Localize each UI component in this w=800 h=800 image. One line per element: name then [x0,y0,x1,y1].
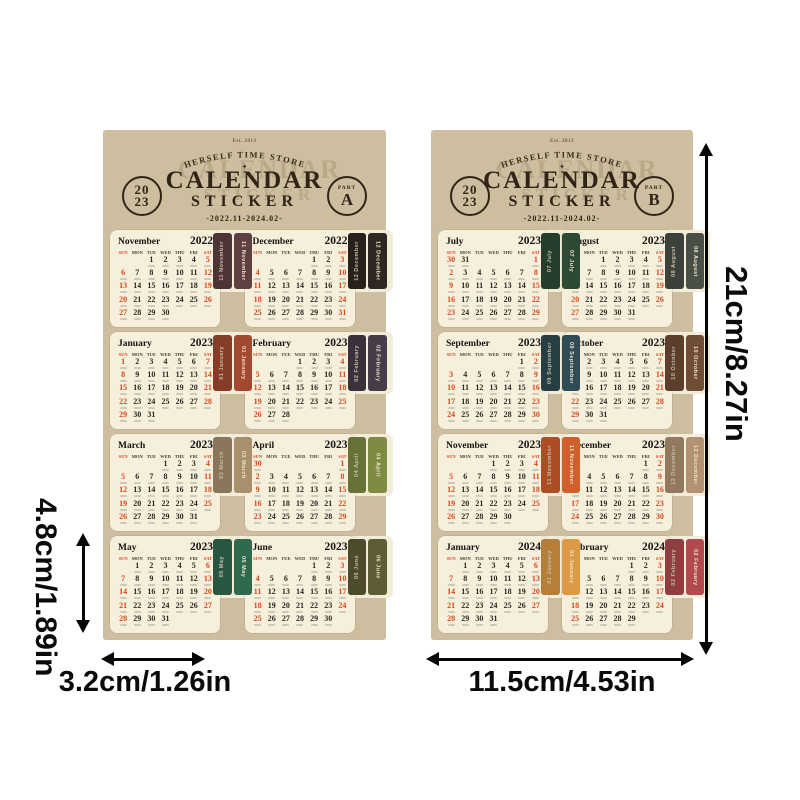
lunar-subtext [325,318,332,320]
lunar-subtext [311,584,318,586]
calendar-cell: 09 September09 SeptemberSeptember2023SUN… [438,332,562,434]
day-number: 3 [458,269,472,277]
day-cell: 18 [251,296,265,309]
lunar-subtext [628,571,635,573]
month-tab: 08 August08 August [665,233,704,289]
lunar-subtext [311,597,318,599]
day-cell: 20 [596,602,610,615]
day-number: 4 [251,269,265,277]
day-cell: 31 [187,513,201,526]
weekday-label: MON [582,453,596,460]
day-number: 15 [144,282,158,290]
day-number: 22 [335,500,349,508]
day-number: 19 [625,384,639,392]
sheet-a-header: CALENDAR STICKER Est. 2013 HERSELF TIME … [103,130,386,230]
day-cell: 26 [582,615,596,628]
month-tab-label: 01 January [568,550,574,584]
day-number: 17 [321,384,335,392]
day-grid: SUNMONTUEWEDTHUFRISAT1234567891011121314… [438,554,548,628]
lunar-subtext [600,278,607,280]
lunar-subtext [296,482,303,484]
day-number: 20 [130,500,144,508]
lunar-subtext [614,407,621,409]
lunar-subtext [176,495,183,497]
day-cell: 27 [639,398,653,411]
day-number: 25 [251,615,265,623]
weekday-label: WED [293,453,307,460]
lunar-subtext [120,305,127,307]
lunar-subtext [296,393,303,395]
month-name: September [446,339,490,349]
day-number: 26 [444,513,458,521]
lunar-subtext [490,318,497,320]
lunar-subtext [628,624,635,626]
day-cell: 19 [625,384,639,397]
day-number: 14 [444,588,458,596]
day-number: 21 [625,500,639,508]
lunar-subtext [339,380,346,382]
lunar-subtext [148,495,155,497]
day-cell: 17 [568,500,582,513]
month-tab-out: 03 March [234,437,253,493]
month-tab-label: 09 September [568,342,574,384]
lunar-subtext [642,571,649,573]
lunar-subtext [162,393,169,395]
day-cell: 20 [501,296,515,309]
month-tab-out: 01 January [234,335,253,391]
lunar-subtext [600,482,607,484]
month-tab: 02 February02 February [665,539,704,595]
day-number: 22 [568,398,582,406]
day-number: 12 [486,282,500,290]
lunar-subtext [462,611,469,613]
lunar-subtext [462,393,469,395]
day-cell: 31 [625,309,639,322]
lunar-subtext [190,469,197,471]
day-number: 25 [251,309,265,317]
lunar-subtext [504,318,511,320]
day-cell: 19 [486,296,500,309]
weekday-label: TUE [279,453,293,460]
day-cell: 13 [116,282,130,295]
day-number: 30 [529,411,543,419]
lunar-subtext [339,509,346,511]
day-number: 15 [307,282,321,290]
lunar-subtext [572,522,579,524]
lunar-subtext [282,291,289,293]
lunar-subtext [134,407,141,409]
day-cell: 23 [444,309,458,322]
lunar-subtext [656,407,663,409]
lunar-subtext [504,611,511,613]
lunar-subtext [600,265,607,267]
day-number: 31 [458,256,472,264]
day-number: 10 [321,371,335,379]
day-number: 13 [486,384,500,392]
month-tab: 12 December12 December [348,233,387,289]
day-number: 17 [187,486,201,494]
day-number: 20 [486,398,500,406]
lunar-subtext [504,597,511,599]
lunar-subtext [204,584,211,586]
month-year: 2024 [518,541,541,553]
day-cell: 25 [279,513,293,526]
lunar-subtext [642,495,649,497]
month-tab-label: 11 November [240,241,246,281]
sticker-sheet-part-b: CALENDAR STICKER Est. 2013 HERSELF TIME … [431,130,693,640]
weekday-label: SUN [116,453,130,460]
lunar-subtext [120,367,127,369]
lunar-subtext [339,611,346,613]
day-cell: 21 [293,296,307,309]
day-number: 14 [501,384,515,392]
day-number: 13 [639,371,653,379]
day-number: 10 [515,473,529,481]
sheet-width-dimension-label: 11.5cm/4.53in [452,666,672,699]
lunar-subtext [614,495,621,497]
day-number: 7 [144,473,158,481]
lunar-subtext [190,407,197,409]
month-tab-label: 04 April [374,453,380,477]
lunar-subtext [628,509,635,511]
day-number: 10 [144,371,158,379]
day-cell: 27 [596,615,610,628]
day-cell: 19 [187,588,201,601]
day-number: 15 [486,486,500,494]
day-cell: 19 [582,602,596,615]
day-cell: 17 [187,486,201,499]
day-number: 28 [279,411,293,419]
day-grid: SUNMONTUEWEDTHUFRISAT1234567891011121314… [110,452,220,526]
lunar-subtext [134,482,141,484]
day-cell: 29 [639,513,653,526]
day-cell: 22 [130,602,144,615]
day-cell: 22 [116,398,130,411]
day-cell: 30 [158,309,172,322]
month-tab-out: 10 October [686,335,705,391]
day-cell: 23 [610,296,624,309]
day-number: 22 [307,296,321,304]
day-number: 18 [582,500,596,508]
day-cell: 29 [158,513,172,526]
day-cell: 11 [279,486,293,499]
day-number: 10 [187,473,201,481]
day-number: 16 [501,486,515,494]
day-number: 31 [335,309,349,317]
lunar-subtext [176,522,183,524]
month-tab-out: 01 January [562,539,581,595]
day-number: 27 [486,411,500,419]
weekday-label: WED [610,453,624,460]
day-cell: 25 [187,296,201,309]
day-number: 4 [501,562,515,570]
day-cell: 13 [501,282,515,295]
day-cell: 14 [279,384,293,397]
weekday-label: MON [130,453,144,460]
lunar-subtext [628,278,635,280]
lunar-subtext [204,571,211,573]
day-cell: 31 [144,411,158,424]
day-number: 21 [130,296,144,304]
weekday-label: FRI [515,249,529,256]
lunar-subtext [190,509,197,511]
lunar-subtext [325,584,332,586]
day-number: 26 [293,513,307,521]
day-number: 17 [458,296,472,304]
lunar-subtext [476,407,483,409]
day-cell: 20 [610,500,624,513]
day-number: 4 [251,575,265,583]
lunar-subtext [282,318,289,320]
day-number: 8 [486,473,500,481]
day-number: 26 [472,411,486,419]
day-cell: 15 [458,588,472,601]
day-number: 16 [610,282,624,290]
lunar-subtext [518,393,525,395]
lunar-subtext [282,420,289,422]
day-number: 28 [444,615,458,623]
day-cell: 30 [501,513,515,526]
lunar-subtext [448,265,455,267]
lunar-subtext [586,597,593,599]
month-tab: 01 January01 January [213,335,252,391]
lunar-subtext [476,509,483,511]
lunar-subtext [120,495,127,497]
lunar-subtext [462,318,469,320]
day-cell: 24 [265,513,279,526]
day-cell: 17 [458,296,472,309]
lunar-subtext [190,522,197,524]
lunar-subtext [339,469,346,471]
day-cell: 27 [610,513,624,526]
day-number: 26 [486,309,500,317]
day-number: 20 [501,296,515,304]
lunar-subtext [600,597,607,599]
day-cell: 23 [251,513,265,526]
day-number: 28 [501,411,515,419]
day-number: 25 [582,513,596,521]
month-tab: 11 November11 November [541,437,580,493]
calendar-cell: 06 June06 JuneJune2023SUNMONTUEWEDTHUFRI… [245,536,380,638]
day-number: 29 [596,309,610,317]
month-tab-in: 10 October [665,335,684,391]
weekday-label: MON [582,249,596,256]
day-number: 24 [173,296,187,304]
day-number: 8 [307,269,321,277]
day-number: 15 [596,282,610,290]
lunar-subtext [532,278,539,280]
month-tab-label: 04 April [354,453,360,477]
calendar-card-header: June2023 [245,536,355,553]
day-cell: 12 [116,486,130,499]
day-number: 3 [625,256,639,264]
day-cell: 18 [639,282,653,295]
lunar-subtext [120,318,127,320]
lunar-subtext [448,624,455,626]
day-number: 9 [444,282,458,290]
day-cell: 23 [173,500,187,513]
calendar-card-may-2023: May2023SUNMONTUEWEDTHUFRISAT123456789101… [110,536,220,633]
day-number: 11 [639,269,653,277]
day-number: 17 [265,500,279,508]
day-number: 24 [444,411,458,419]
day-number: 16 [444,296,458,304]
day-number: 19 [515,588,529,596]
day-cell: 29 [568,411,582,424]
lunar-subtext [476,420,483,422]
day-number: 24 [335,602,349,610]
day-cell: 20 [458,500,472,513]
lunar-subtext [282,597,289,599]
lunar-subtext [148,571,155,573]
weekday-label: WED [610,555,624,562]
month-tab-label: 10 October [692,346,698,380]
lunar-subtext [448,522,455,524]
day-number: 11 [173,575,187,583]
day-number: 29 [144,309,158,317]
day-cell: 29 [458,615,472,628]
lunar-subtext [176,482,183,484]
day-cell: 10 [265,486,279,499]
day-cell: 26 [596,513,610,526]
day-number: 19 [187,588,201,596]
lunar-subtext [642,393,649,395]
day-cell: 25 [201,500,215,513]
day-number: 23 [472,602,486,610]
day-number: 14 [321,486,335,494]
lunar-subtext [462,291,469,293]
lunar-subtext [325,393,332,395]
month-name: February [253,339,292,349]
month-tab-label: 02 February [692,549,698,586]
day-cell: 20 [279,602,293,615]
lunar-subtext [176,278,183,280]
lunar-subtext [339,305,346,307]
day-number: 22 [639,500,653,508]
month-tab-label: 12 December [374,241,380,281]
day-number: 15 [116,384,130,392]
lunar-subtext [339,291,346,293]
day-cell: 18 [472,296,486,309]
day-number: 17 [144,384,158,392]
calendar-card-header: January2024 [438,536,548,553]
lunar-subtext [518,291,525,293]
day-cell [335,411,349,424]
day-cell: 16 [158,282,172,295]
day-cell: 25 [173,602,187,615]
day-number: 18 [251,296,265,304]
day-number: 22 [529,296,543,304]
day-grid: SUNMONTUEWEDTHUFRISAT1234567891011121314… [245,350,355,424]
day-cell: 13 [265,384,279,397]
lunar-subtext [642,367,649,369]
month-year: 2023 [518,439,541,451]
day-cell: 21 [321,500,335,513]
day-cell: 14 [625,486,639,499]
calendar-cell: 12 December12 DecemberDecember2023SUNMON… [562,434,686,536]
lunar-subtext [268,278,275,280]
day-number: 15 [307,588,321,596]
lunar-subtext [490,278,497,280]
day-cell: 23 [653,500,667,513]
month-year: 2023 [190,439,213,451]
lunar-subtext [614,305,621,307]
lunar-subtext [476,495,483,497]
day-cell: 22 [458,602,472,615]
lunar-subtext [614,597,621,599]
day-number: 2 [610,256,624,264]
lunar-subtext [628,611,635,613]
lunar-subtext [532,469,539,471]
day-cell: 27 [458,513,472,526]
day-number: 30 [444,256,458,264]
weekday-label: THU [307,453,321,460]
calendar-cell: 01 January01 JanuaryJanuary2023SUNMONTUE… [110,332,245,434]
lunar-subtext [462,482,469,484]
lunar-subtext [190,265,197,267]
day-cell: 13 [130,486,144,499]
calendar-card-header: January2023 [110,332,220,349]
day-number: 2 [158,256,172,264]
day-number: 25 [472,309,486,317]
day-number: 9 [472,575,486,583]
day-cell: 19 [515,588,529,601]
lunar-subtext [586,482,593,484]
lunar-subtext [296,367,303,369]
lunar-subtext [282,305,289,307]
day-grid: SUNMONTUEWEDTHUFRISAT1234567891011121314… [110,554,220,628]
day-cell: 27 [187,398,201,411]
day-number: 26 [265,615,279,623]
weekday-label: MON [458,453,472,460]
month-year: 2024 [642,541,665,553]
day-cell [529,615,543,628]
day-grid: SUNMONTUEWEDTHUFRISAT1234567891011121314… [110,248,220,322]
day-number: 26 [653,296,667,304]
lunar-subtext [518,407,525,409]
day-cell: 29 [335,513,349,526]
lunar-subtext [311,318,318,320]
day-cell: 31 [158,615,172,628]
day-number: 8 [639,473,653,481]
day-number: 18 [568,602,582,610]
day-cell: 22 [486,500,500,513]
lunar-subtext [490,522,497,524]
day-number: 14 [130,282,144,290]
day-cell: 26 [653,296,667,309]
day-cell: 21 [444,602,458,615]
day-cell: 22 [144,296,158,309]
day-number: 29 [307,309,321,317]
day-cell: 26 [515,602,529,615]
lunar-subtext [120,380,127,382]
lunar-subtext [282,278,289,280]
lunar-subtext [462,278,469,280]
lunar-subtext [162,571,169,573]
lunar-subtext [134,611,141,613]
day-cell: 27 [307,513,321,526]
lunar-subtext [148,291,155,293]
day-number: 16 [173,486,187,494]
month-year: 2023 [325,439,348,451]
lunar-subtext [462,522,469,524]
lunar-subtext [120,420,127,422]
day-cell [201,309,215,322]
day-number: 14 [116,588,130,596]
lunar-subtext [642,597,649,599]
day-number: 1 [116,358,130,366]
lunar-subtext [504,420,511,422]
